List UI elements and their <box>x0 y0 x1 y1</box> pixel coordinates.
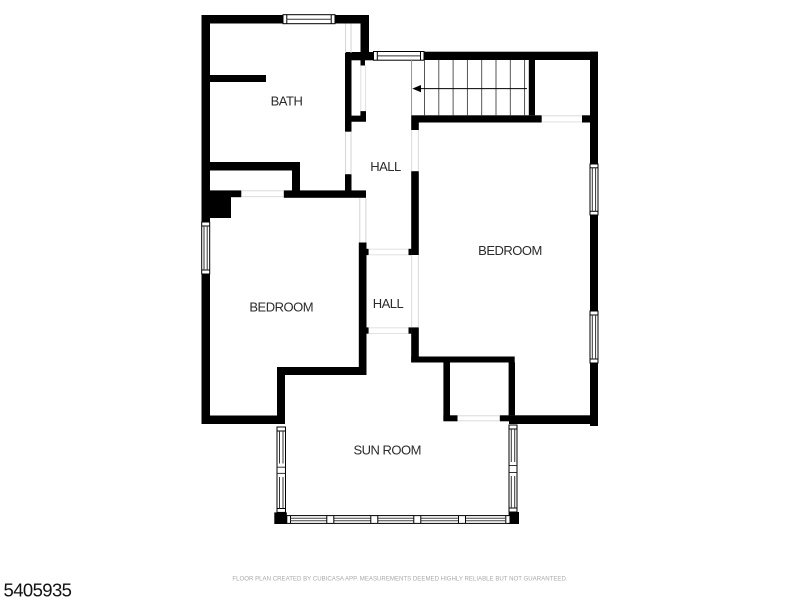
svg-text:FLOOR PLAN CREATED BY CUBICASA: FLOOR PLAN CREATED BY CUBICASA APP. MEAS… <box>232 576 567 583</box>
svg-text:BATH: BATH <box>271 94 303 109</box>
svg-text:SUN ROOM: SUN ROOM <box>353 442 421 457</box>
svg-text:HALL: HALL <box>370 159 401 174</box>
svg-text:HALL: HALL <box>373 296 404 311</box>
svg-text:BEDROOM: BEDROOM <box>249 299 313 314</box>
svg-text:BEDROOM: BEDROOM <box>478 243 542 258</box>
svg-text:5405935: 5405935 <box>4 580 72 600</box>
